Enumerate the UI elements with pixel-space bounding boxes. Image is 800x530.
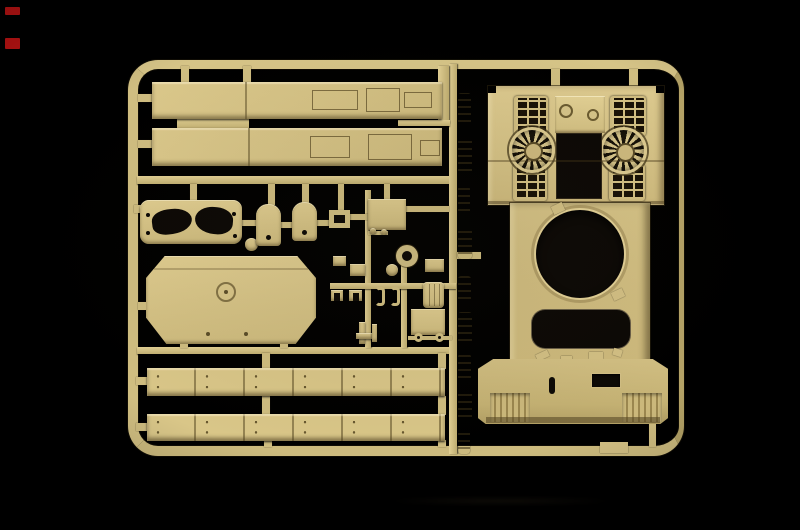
filler-cap (559, 104, 573, 118)
sprue-gate (551, 69, 560, 87)
c-clamp (375, 287, 385, 306)
eyelet (435, 333, 444, 342)
small-fitting (458, 226, 472, 259)
rivet-hole (233, 234, 237, 238)
runner (401, 264, 407, 348)
sprue-gate (136, 423, 147, 431)
deck-corner-notch (656, 86, 664, 93)
mantlet-plate (140, 200, 242, 244)
square-frame-part (329, 210, 350, 228)
port-opening (592, 374, 620, 387)
bolt-hole (244, 332, 248, 336)
panel-seam (245, 82, 247, 119)
sprue-gate (190, 184, 197, 201)
hatch-engraving (310, 136, 350, 158)
cooling-fan (509, 127, 555, 173)
red-registration-mark (5, 7, 20, 15)
rivet-hole (302, 230, 307, 235)
sprue-gate (138, 94, 152, 102)
fender-panel-bottom (152, 128, 442, 166)
ring-part (396, 245, 418, 267)
bracket-notch (353, 293, 359, 301)
frame-label-tab (600, 442, 628, 453)
small-fitting (458, 186, 470, 216)
photo-stage (0, 0, 800, 530)
hatch-engraving (366, 88, 400, 112)
sprue-gate (629, 69, 638, 87)
small-block (333, 256, 346, 266)
vision-slot (549, 377, 555, 394)
sprue-gate (438, 396, 446, 415)
mini-disc (381, 229, 387, 235)
engine-bay-opening (556, 133, 602, 199)
runner (398, 120, 450, 126)
c-clamp (390, 287, 400, 306)
sprue-gate (268, 184, 275, 205)
bracket (331, 290, 343, 301)
small-fitting (458, 391, 472, 422)
rivet-hole (146, 213, 150, 217)
filler-cap (587, 109, 599, 121)
eyelet (414, 333, 423, 342)
sprue-gate (384, 184, 390, 200)
red-registration-mark (5, 38, 20, 49)
fan-hub (616, 143, 635, 162)
bracket (349, 290, 362, 301)
stowage-box (423, 282, 444, 308)
tombstone-cover (292, 202, 317, 241)
small-fitting (458, 430, 470, 454)
sprue-gate (406, 206, 449, 212)
floor-reflection (340, 497, 660, 505)
small-fitting (458, 276, 471, 304)
turret-ring-opening (534, 208, 626, 300)
ring-satellite-disc (386, 264, 398, 276)
runner (137, 347, 457, 354)
sprue-gate (350, 214, 368, 220)
sprue-gate (242, 220, 256, 226)
sprue-gate (438, 353, 446, 369)
bolt-hole (206, 332, 210, 336)
hatch-engraving (420, 140, 440, 156)
kidney-cutout (194, 205, 234, 235)
hatch-engraving (404, 92, 432, 108)
deck-corner-notch (488, 86, 496, 93)
sprue-gate (264, 440, 272, 447)
mini-disc (370, 228, 376, 234)
sprue-gate (649, 421, 656, 447)
hatch-engraving (368, 134, 412, 160)
sprue-gate (136, 377, 147, 385)
filler-cap-panel (555, 96, 605, 133)
plate-seam (154, 268, 308, 270)
bolt-hole (224, 290, 228, 294)
fender-panel-top (152, 82, 442, 119)
sprue-gate (262, 396, 270, 415)
track-guard-strip (147, 414, 445, 441)
small-fitting (458, 138, 472, 176)
runner (449, 64, 457, 454)
ribbed-block (350, 264, 365, 276)
deck-seam (488, 160, 664, 162)
sprue-gate (302, 184, 309, 203)
bracket-notch (334, 293, 340, 301)
kidney-cutout (151, 207, 194, 237)
rivet-hole (266, 235, 271, 240)
clasp-detail (589, 352, 603, 359)
rivet-hole (146, 231, 150, 235)
tombstone-cover (256, 204, 281, 246)
box-ribs (425, 284, 442, 306)
panel-seam (248, 128, 250, 166)
small-fitting (458, 312, 472, 346)
runner (137, 176, 455, 184)
fan-hub (524, 142, 543, 161)
hull-belly-plate (146, 256, 316, 344)
hatch-block (368, 199, 406, 230)
sprue-gate (338, 184, 344, 211)
sprue-gate (262, 353, 270, 369)
small-fitting (458, 354, 471, 383)
l-bracket (372, 324, 377, 342)
cooling-fan (600, 127, 647, 174)
small-fitting (458, 93, 471, 127)
glacis-bottom-edge (486, 417, 660, 423)
t-bracket (356, 333, 373, 339)
small-plate (411, 309, 445, 335)
crew-hatch-opening (531, 309, 631, 349)
sprue-gate (138, 140, 152, 148)
sprue-gate (438, 440, 446, 447)
rivet-hole (232, 212, 236, 216)
hatch-engraving (312, 90, 358, 110)
small-block (425, 259, 444, 272)
sprue-gate (280, 222, 292, 228)
track-guard-strip (147, 368, 445, 396)
